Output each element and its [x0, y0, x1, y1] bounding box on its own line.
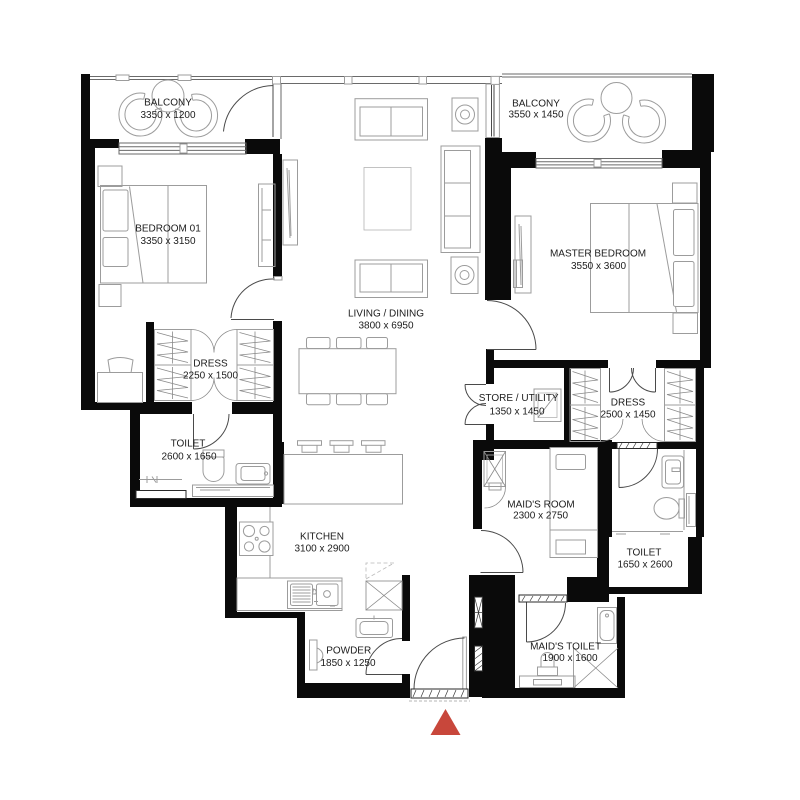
svg-text:POWDER: POWDER [326, 646, 371, 657]
svg-text:2600 x 1650: 2600 x 1650 [161, 452, 216, 463]
svg-text:KITCHEN: KITCHEN [300, 532, 344, 543]
svg-text:2250 x 1500: 2250 x 1500 [183, 371, 238, 382]
svg-text:3800 x 6950: 3800 x 6950 [358, 321, 413, 332]
svg-text:TOILET: TOILET [627, 548, 662, 559]
svg-text:3100 x 2900: 3100 x 2900 [294, 544, 349, 555]
svg-text:MASTER BEDROOM: MASTER BEDROOM [550, 249, 646, 260]
svg-text:2300 x 2750: 2300 x 2750 [513, 511, 568, 522]
svg-text:BALCONY: BALCONY [144, 98, 192, 109]
svg-text:1350 x 1450: 1350 x 1450 [489, 407, 544, 418]
svg-text:1850 x 1250: 1850 x 1250 [320, 658, 375, 669]
svg-text:3350 x 3150: 3350 x 3150 [140, 236, 195, 247]
svg-text:3350 x 1200: 3350 x 1200 [140, 110, 195, 121]
svg-text:1900 x 1600: 1900 x 1600 [542, 653, 597, 664]
svg-text:LIVING / DINING: LIVING / DINING [348, 309, 424, 320]
svg-text:3550 x 1450: 3550 x 1450 [508, 110, 563, 121]
svg-text:MAID'S TOILET: MAID'S TOILET [530, 642, 601, 653]
svg-text:TOILET: TOILET [171, 439, 206, 450]
svg-text:2500 x 1450: 2500 x 1450 [600, 410, 655, 421]
svg-text:BALCONY: BALCONY [512, 99, 560, 110]
svg-text:MAID'S ROOM: MAID'S ROOM [507, 500, 574, 511]
svg-text:1650 x 2600: 1650 x 2600 [617, 560, 672, 571]
svg-text:STORE / UTILITY: STORE / UTILITY [479, 393, 559, 404]
svg-text:3550 x 3600: 3550 x 3600 [571, 261, 626, 272]
svg-text:DRESS: DRESS [611, 398, 646, 409]
svg-text:DRESS: DRESS [193, 359, 228, 370]
svg-text:BEDROOM 01: BEDROOM 01 [135, 224, 201, 235]
